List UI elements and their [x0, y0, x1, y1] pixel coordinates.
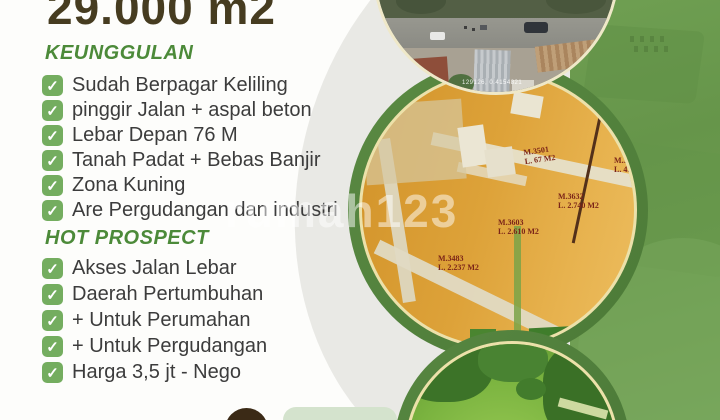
feature-label: Lebar Depan 76 M: [72, 124, 238, 147]
map-building: [457, 124, 488, 167]
check-icon: ✓: [42, 258, 63, 279]
panel-pattern-windows: [634, 46, 674, 52]
aerial-field-photo: [408, 344, 616, 420]
feature-item: ✓ Akses Jalan Lebar: [42, 257, 237, 280]
check-icon: ✓: [42, 125, 63, 146]
parcel-label: M.3483 L. 2.237 M2: [438, 254, 479, 272]
section-heading-hot-prospect: HOT PROSPECT: [45, 227, 209, 250]
check-icon: ✓: [42, 175, 63, 196]
map-building: [510, 92, 543, 119]
parcel-label: M.3603 L. 2.610 M2: [498, 218, 539, 236]
panel-pattern-windows: [630, 36, 670, 42]
feature-item: ✓ + Untuk Perumahan: [42, 309, 250, 332]
check-icon: ✓: [42, 284, 63, 305]
parcel-area: L. 2.740 M2: [558, 201, 599, 210]
tree-blob: [478, 344, 548, 382]
feature-item: ✓ Lebar Depan 76 M: [42, 124, 238, 147]
check-icon: ✓: [42, 75, 63, 96]
rumah123-watermark: rumah123: [225, 184, 458, 238]
check-icon: ✓: [42, 150, 63, 171]
feature-label: pinggir Jalan + aspal beton: [72, 99, 312, 122]
red-roof: [401, 56, 449, 89]
feature-item: ✓ Harga 3,5 jt - Nego: [42, 361, 241, 384]
parcel-label-clipped: M.36 L. 4.9: [614, 156, 633, 174]
field-photo-circle: [394, 330, 630, 420]
feature-item: ✓ Tanah Padat + Bebas Banjir: [42, 149, 321, 172]
map-beige-block: [362, 99, 467, 186]
parcel-id: M.3483: [438, 254, 479, 263]
feature-item: ✓ pinggir Jalan + aspal beton: [42, 99, 312, 122]
feature-label: Tanah Padat + Bebas Banjir: [72, 149, 321, 172]
map-green-patch: [514, 226, 521, 331]
check-icon: ✓: [42, 362, 63, 383]
feature-label: Daerah Pertumbuhan: [72, 283, 263, 306]
parcel-id: M.3603: [498, 218, 539, 227]
feature-item: ✓ + Untuk Pergudangan: [42, 335, 267, 358]
road-photo-circle: 129126, 0.4154821: [373, 0, 619, 95]
gps-coordinates-text: 129126, 0.4154821: [462, 80, 522, 86]
phone-icon-button[interactable]: ☎: [225, 408, 268, 420]
feature-item: ✓ Zona Kuning: [42, 174, 185, 197]
section-heading-keunggulan: KEUNGGULAN: [45, 42, 193, 65]
parcel-id: M.36: [614, 156, 633, 165]
feature-label: Zona Kuning: [72, 174, 185, 197]
check-icon: ✓: [42, 200, 63, 221]
aerial-road-photo: 129126, 0.4154821: [376, 0, 616, 92]
feature-item: ✓ Daerah Pertumbuhan: [42, 283, 263, 306]
feature-label: + Untuk Perumahan: [72, 309, 250, 332]
check-icon: ✓: [42, 336, 63, 357]
vehicle: [524, 22, 548, 33]
check-icon: ✓: [42, 310, 63, 331]
map-green-patch: [362, 114, 378, 134]
vehicle: [480, 25, 487, 30]
feature-label: Harga 3,5 jt - Nego: [72, 361, 241, 384]
flyer-canvas: M.3501 L. 67 M2 M.3632 L. 2.740 M2 M.360…: [0, 0, 720, 420]
motorbike: [464, 26, 467, 29]
parcel-area: L. 4.9: [614, 165, 633, 174]
feature-label: Sudah Berpagar Keliling: [72, 74, 288, 97]
feature-item: ✓ Sudah Berpagar Keliling: [42, 74, 288, 97]
map-building: [484, 146, 516, 178]
parcel-label: M.3632 L. 2.740 M2: [558, 192, 599, 210]
check-icon: ✓: [42, 100, 63, 121]
cta-pill-button[interactable]: [283, 407, 397, 420]
feature-label: Akses Jalan Lebar: [72, 257, 237, 280]
parcel-id: M.3632: [558, 192, 599, 201]
tree-blob: [516, 378, 546, 400]
parcel-area: L. 2.610 M2: [498, 227, 539, 236]
land-area-title: 29.000 m2: [47, 0, 276, 32]
parcel-area: L. 2.237 M2: [438, 263, 479, 272]
vehicle: [430, 32, 445, 40]
motorbike: [472, 28, 475, 31]
feature-label: + Untuk Pergudangan: [72, 335, 267, 358]
map-green-patch: [602, 302, 634, 336]
